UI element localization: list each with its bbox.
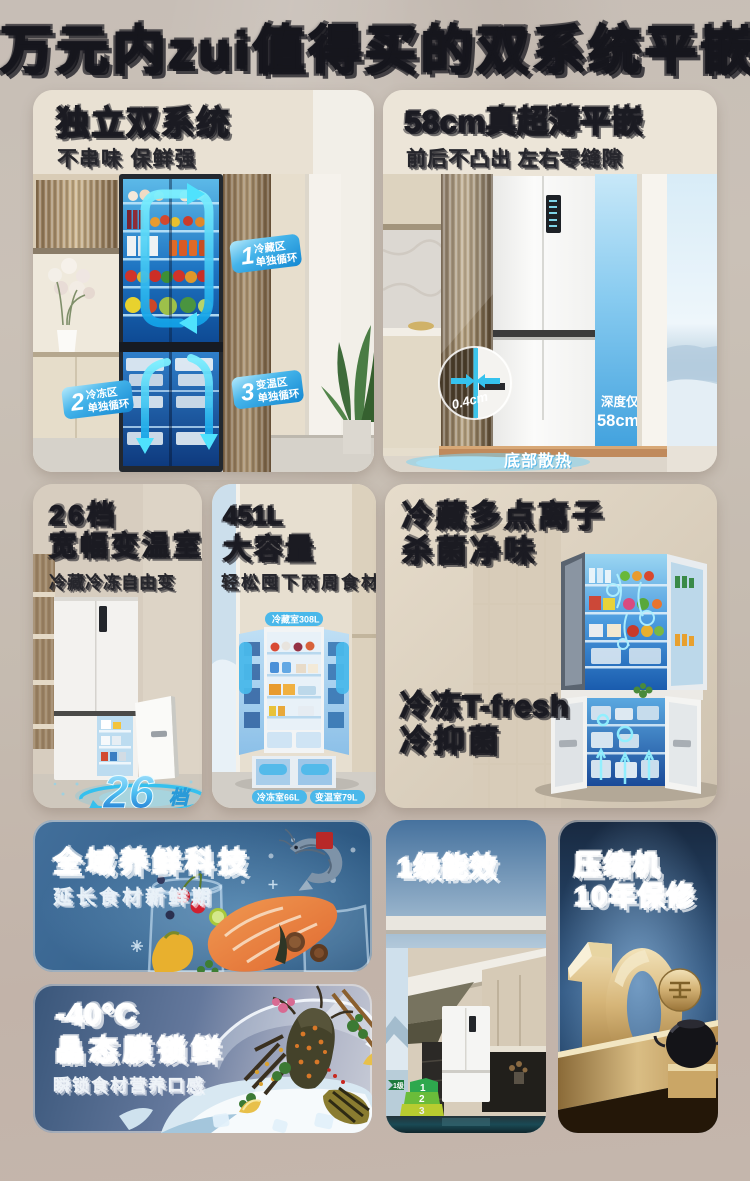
svg-text:冷冻室66L: 冷冻室66L xyxy=(257,792,300,803)
svg-text:26: 26 xyxy=(102,766,155,808)
svg-text:2: 2 xyxy=(419,1094,425,1105)
svg-text:变温室79L: 变温室79L xyxy=(315,792,358,803)
svg-text:58cm: 58cm xyxy=(597,412,639,430)
svg-text:1级: 1级 xyxy=(393,1081,405,1090)
svg-text:底部散热: 底部散热 xyxy=(504,451,572,470)
svg-text:档: 档 xyxy=(169,787,191,808)
svg-text:冷藏室308L: 冷藏室308L xyxy=(272,614,320,625)
svg-text:3: 3 xyxy=(419,1106,425,1117)
svg-text:深度仅: 深度仅 xyxy=(601,394,639,409)
